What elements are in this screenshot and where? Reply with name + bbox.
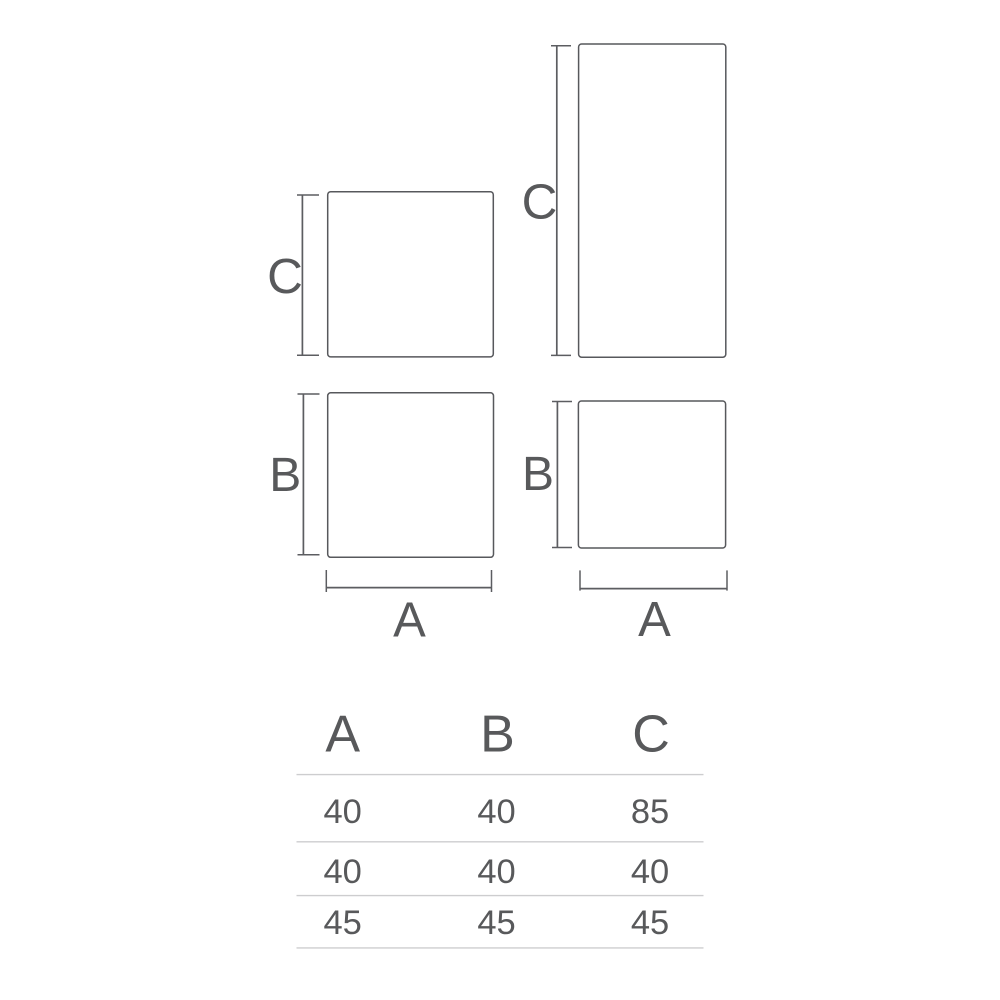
- svg-text:85: 85: [631, 793, 669, 831]
- svg-text:B: B: [480, 705, 515, 763]
- svg-text:C: C: [522, 175, 558, 230]
- svg-text:40: 40: [477, 793, 515, 831]
- svg-text:45: 45: [324, 904, 362, 942]
- svg-text:A: A: [325, 705, 360, 763]
- svg-text:C: C: [632, 705, 670, 763]
- svg-text:45: 45: [477, 904, 515, 942]
- svg-text:40: 40: [324, 853, 362, 891]
- svg-text:C: C: [267, 249, 303, 304]
- svg-text:B: B: [522, 448, 554, 501]
- svg-text:A: A: [393, 594, 426, 648]
- svg-text:45: 45: [631, 904, 669, 942]
- svg-text:A: A: [638, 593, 671, 647]
- svg-text:40: 40: [631, 853, 669, 891]
- svg-text:40: 40: [324, 793, 362, 831]
- svg-text:B: B: [269, 449, 301, 502]
- svg-text:40: 40: [477, 853, 515, 891]
